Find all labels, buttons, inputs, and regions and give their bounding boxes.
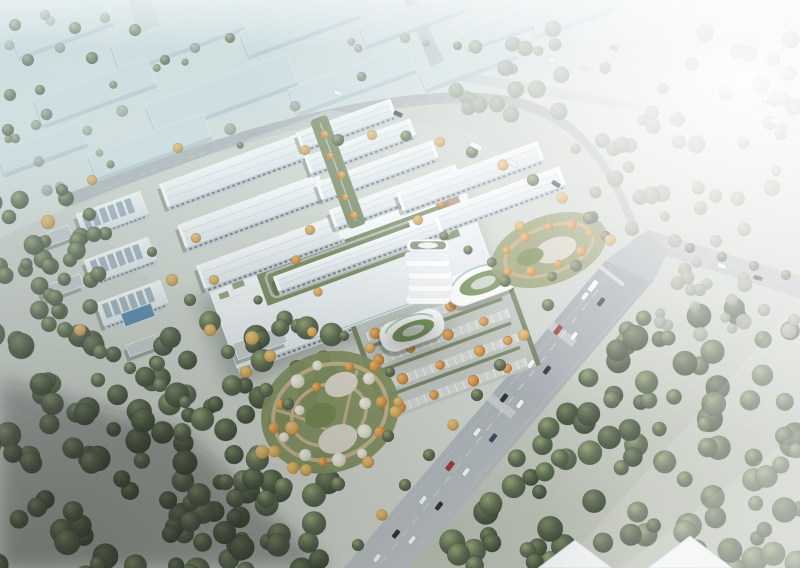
atmosphere-haze bbox=[0, 0, 800, 568]
aerial-rendering bbox=[0, 0, 800, 568]
scene-svg bbox=[0, 0, 800, 568]
